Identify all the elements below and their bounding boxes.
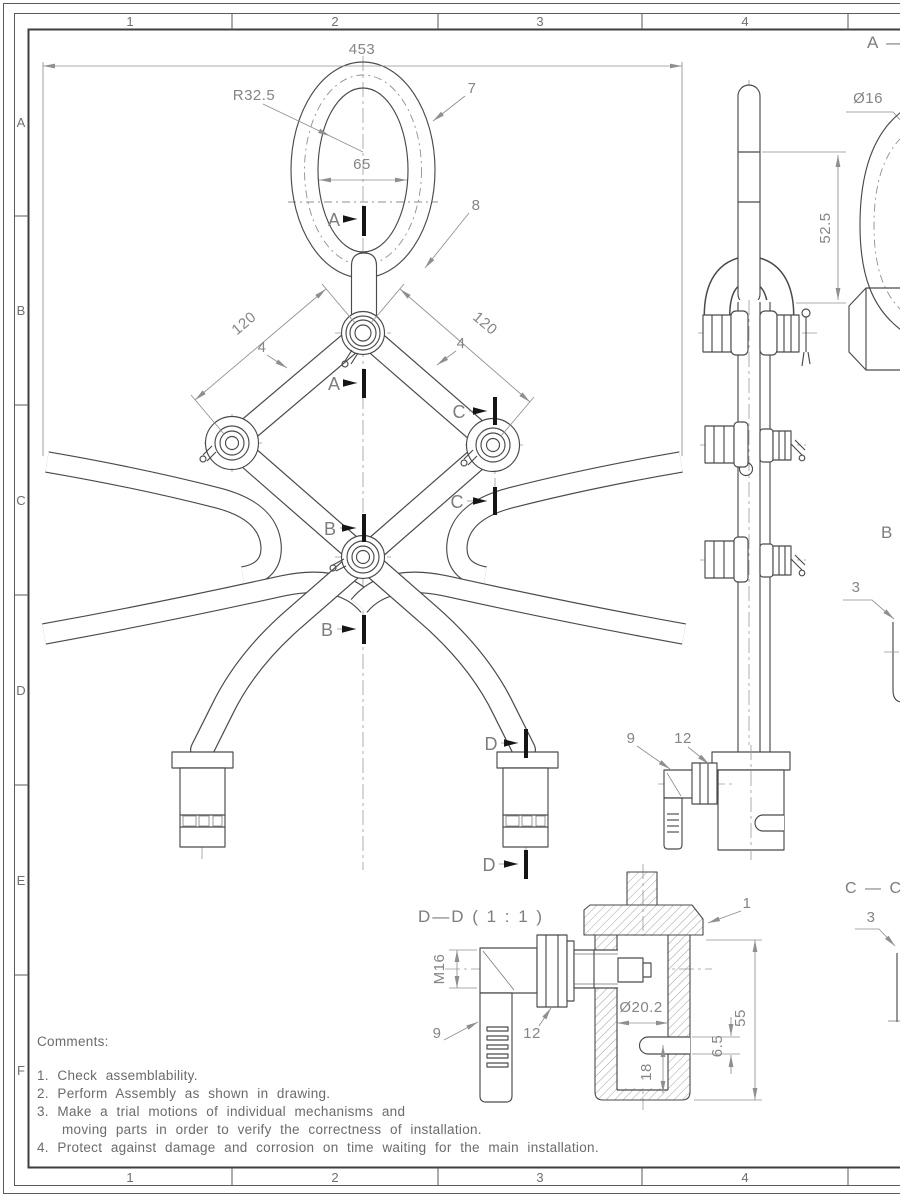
section-aa-fragment: A — A xyxy=(849,33,900,370)
dim-thread: M16 xyxy=(431,954,448,985)
section-label-a-upper: A xyxy=(328,210,340,230)
dim-slot-offset: 18 xyxy=(638,1063,655,1081)
comment-line-2: 2. Perform Assembly as shown in drawing. xyxy=(37,1086,330,1101)
callout-9-side: 9 xyxy=(627,730,636,747)
section-cc-title: C — C xyxy=(845,880,900,897)
comment-line-4: moving parts in order to verify the corr… xyxy=(62,1122,482,1137)
dd-callout-1: 1 xyxy=(743,895,752,912)
dim-ring-inner-width: 65 xyxy=(353,156,371,173)
dim-arm-length-right: 120 xyxy=(469,308,500,338)
section-dd-title: D—D ( 1 : 1 ) xyxy=(418,907,544,926)
section-cc-callout-3: 3 xyxy=(867,909,876,926)
technical-drawing: 1 2 3 4 1 2 3 4 A B C D E F xyxy=(0,0,900,1200)
section-aa-title: A — A xyxy=(867,33,900,52)
callout-12-side: 12 xyxy=(674,730,692,747)
callout-8: 8 xyxy=(472,197,481,214)
callout-7: 7 xyxy=(468,80,477,97)
right-upper-jaw-finger xyxy=(457,462,681,577)
section-bb-callout-3: 3 xyxy=(852,579,861,596)
dim-link-length: 52.5 xyxy=(817,212,834,243)
comments-block: Comments: 1. Check assemblability. 2. Pe… xyxy=(37,1034,599,1155)
zone-bottom-2: 2 xyxy=(331,1170,338,1185)
zone-bottom-4: 4 xyxy=(741,1170,748,1185)
zone-row-d: D xyxy=(16,683,25,698)
threaded-hole xyxy=(594,950,618,988)
zone-bottom-3: 3 xyxy=(536,1170,543,1185)
section-bb-fragment: B — B 3 xyxy=(843,523,900,702)
section-label-d-lower: D xyxy=(483,855,496,875)
dim-overall-height: 55 xyxy=(732,1009,749,1027)
section-label-c-upper: C xyxy=(453,402,466,422)
dd-callout-12: 12 xyxy=(523,1025,541,1042)
section-cc-fragment: C — C 3 xyxy=(845,880,900,1022)
dim-arm-thickness-left: 4 xyxy=(258,339,267,356)
dim-arm-thickness-right: 4 xyxy=(457,335,466,352)
comments-heading: Comments: xyxy=(37,1034,109,1049)
keyhole-slot xyxy=(640,1037,690,1054)
left-pivot-joint xyxy=(200,417,259,470)
section-label-a-lower: A xyxy=(328,374,340,394)
right-foot xyxy=(497,752,558,847)
zone-bottom-1: 1 xyxy=(126,1170,133,1185)
front-view: 453 R32.5 65 120 120 4 4 7 8 xyxy=(43,41,684,879)
section-label-b-upper: B xyxy=(324,519,336,539)
dd-callout-9: 9 xyxy=(433,1025,442,1042)
dim-arm-length-left: 120 xyxy=(228,309,259,339)
dim-ring-radius: R32.5 xyxy=(233,87,276,104)
top-link-side xyxy=(738,85,760,305)
zone-row-f: F xyxy=(17,1063,25,1078)
zone-top-1: 1 xyxy=(126,14,133,29)
zone-row-a: A xyxy=(17,115,26,130)
left-upper-jaw-finger xyxy=(47,462,271,577)
zone-top-4: 4 xyxy=(741,14,748,29)
section-label-b-lower: B xyxy=(321,620,333,640)
dim-slot-width: 6.5 xyxy=(709,1035,726,1057)
flange-section xyxy=(584,905,703,935)
foot-side xyxy=(712,745,790,860)
zone-row-c: C xyxy=(16,493,25,508)
drawing-sheet: 1 2 3 4 1 2 3 4 A B C D E F xyxy=(0,0,900,1200)
dim-bore-diameter: Ø20.2 xyxy=(619,999,662,1016)
comment-line-1: 1. Check assemblability. xyxy=(37,1068,198,1083)
section-dd: D—D ( 1 : 1 ) xyxy=(418,864,762,1110)
section-bb-title: B — B xyxy=(881,523,900,542)
comment-line-5: 4. Protect against damage and corrosion … xyxy=(37,1140,599,1155)
section-label-c-lower: C xyxy=(451,492,464,512)
leg-stub-section xyxy=(627,872,657,905)
zone-top-2: 2 xyxy=(331,14,338,29)
zone-row-e: E xyxy=(17,873,26,888)
section-label-d-upper: D xyxy=(485,734,498,754)
zone-top-3: 3 xyxy=(536,14,543,29)
dim-overall-width: 453 xyxy=(349,41,376,58)
left-foot xyxy=(172,752,233,847)
dim-pin-diameter: Ø16 xyxy=(853,90,883,107)
zone-row-b: B xyxy=(17,303,26,318)
comment-line-3: 3. Make a trial motions of individual me… xyxy=(37,1104,405,1119)
arm-plates-side xyxy=(738,300,770,752)
